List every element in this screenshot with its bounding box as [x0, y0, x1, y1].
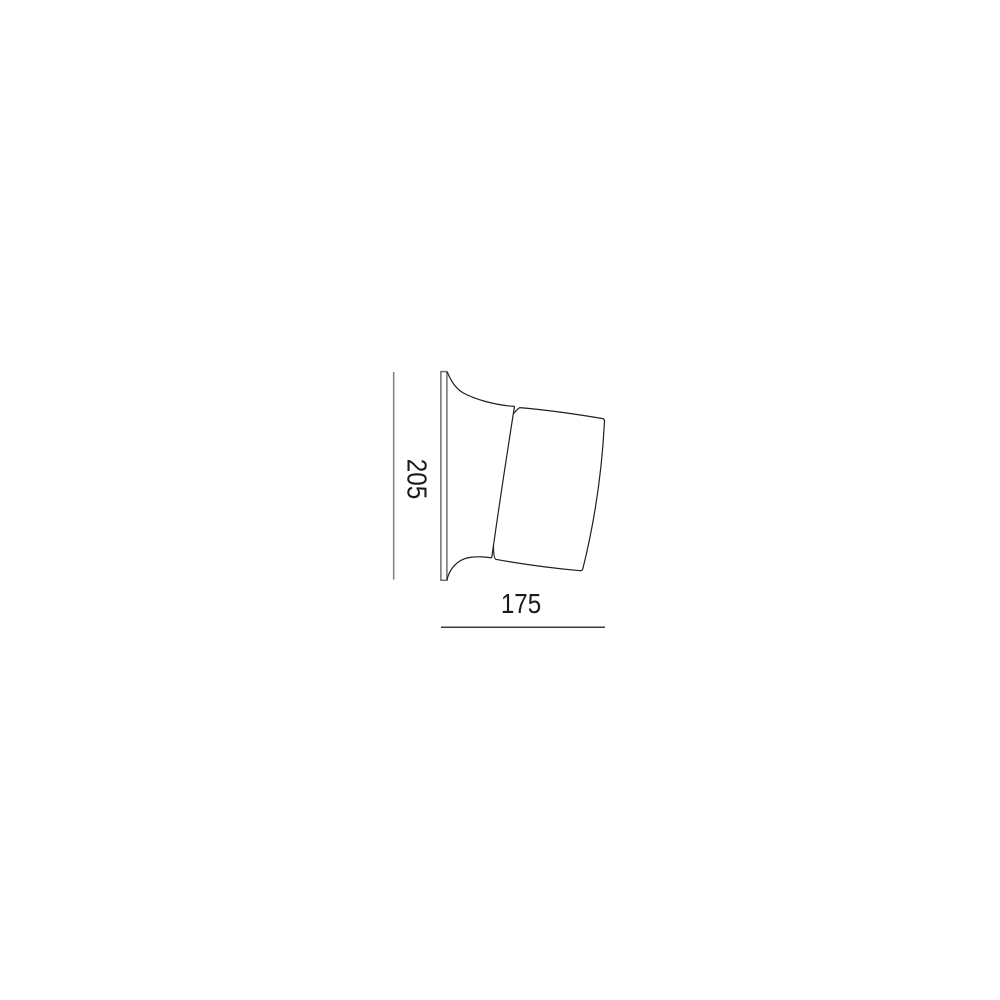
svg-text:205: 205	[402, 459, 433, 500]
svg-text:175: 175	[501, 588, 541, 619]
